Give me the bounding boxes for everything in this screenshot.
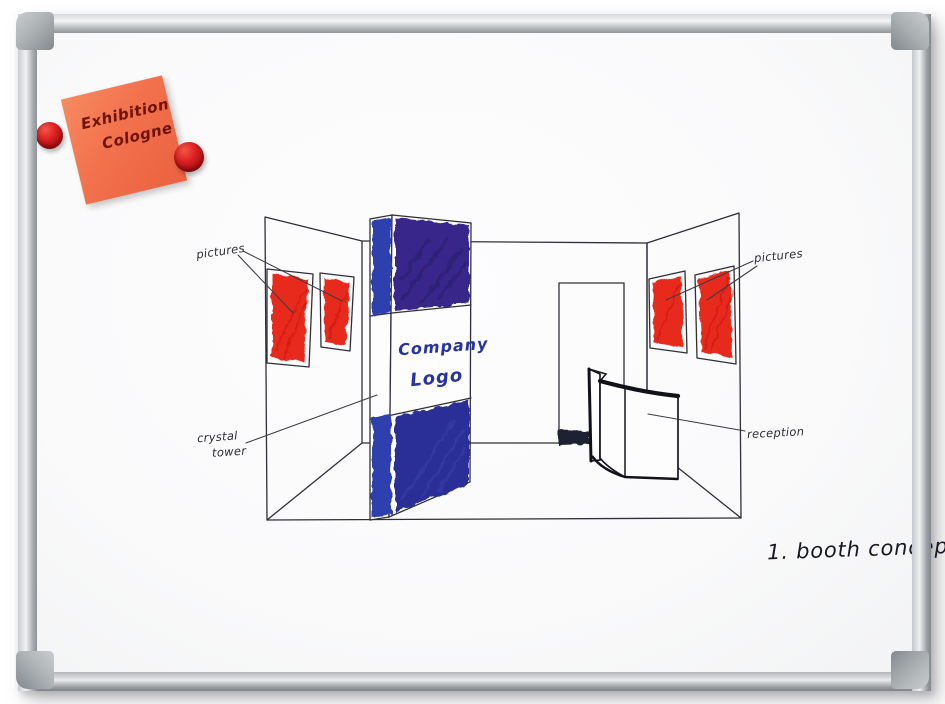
- whiteboard-photo: Company Logo: [0, 0, 945, 704]
- board-corner-cap-bottom-left: [16, 651, 54, 689]
- board-frame-top: [18, 14, 931, 33]
- board-corner-cap-top-left: [16, 12, 54, 50]
- board-frame-bottom: [18, 672, 931, 691]
- board-frame-right: [912, 14, 931, 691]
- board-frame-left: [18, 14, 37, 691]
- magnet-left: [36, 122, 63, 149]
- magnet-right: [174, 142, 204, 172]
- sticky-note-text: Exhibition Cologne: [65, 95, 176, 160]
- board-corner-cap-bottom-right: [891, 651, 929, 689]
- board-corner-cap-top-right: [891, 12, 929, 50]
